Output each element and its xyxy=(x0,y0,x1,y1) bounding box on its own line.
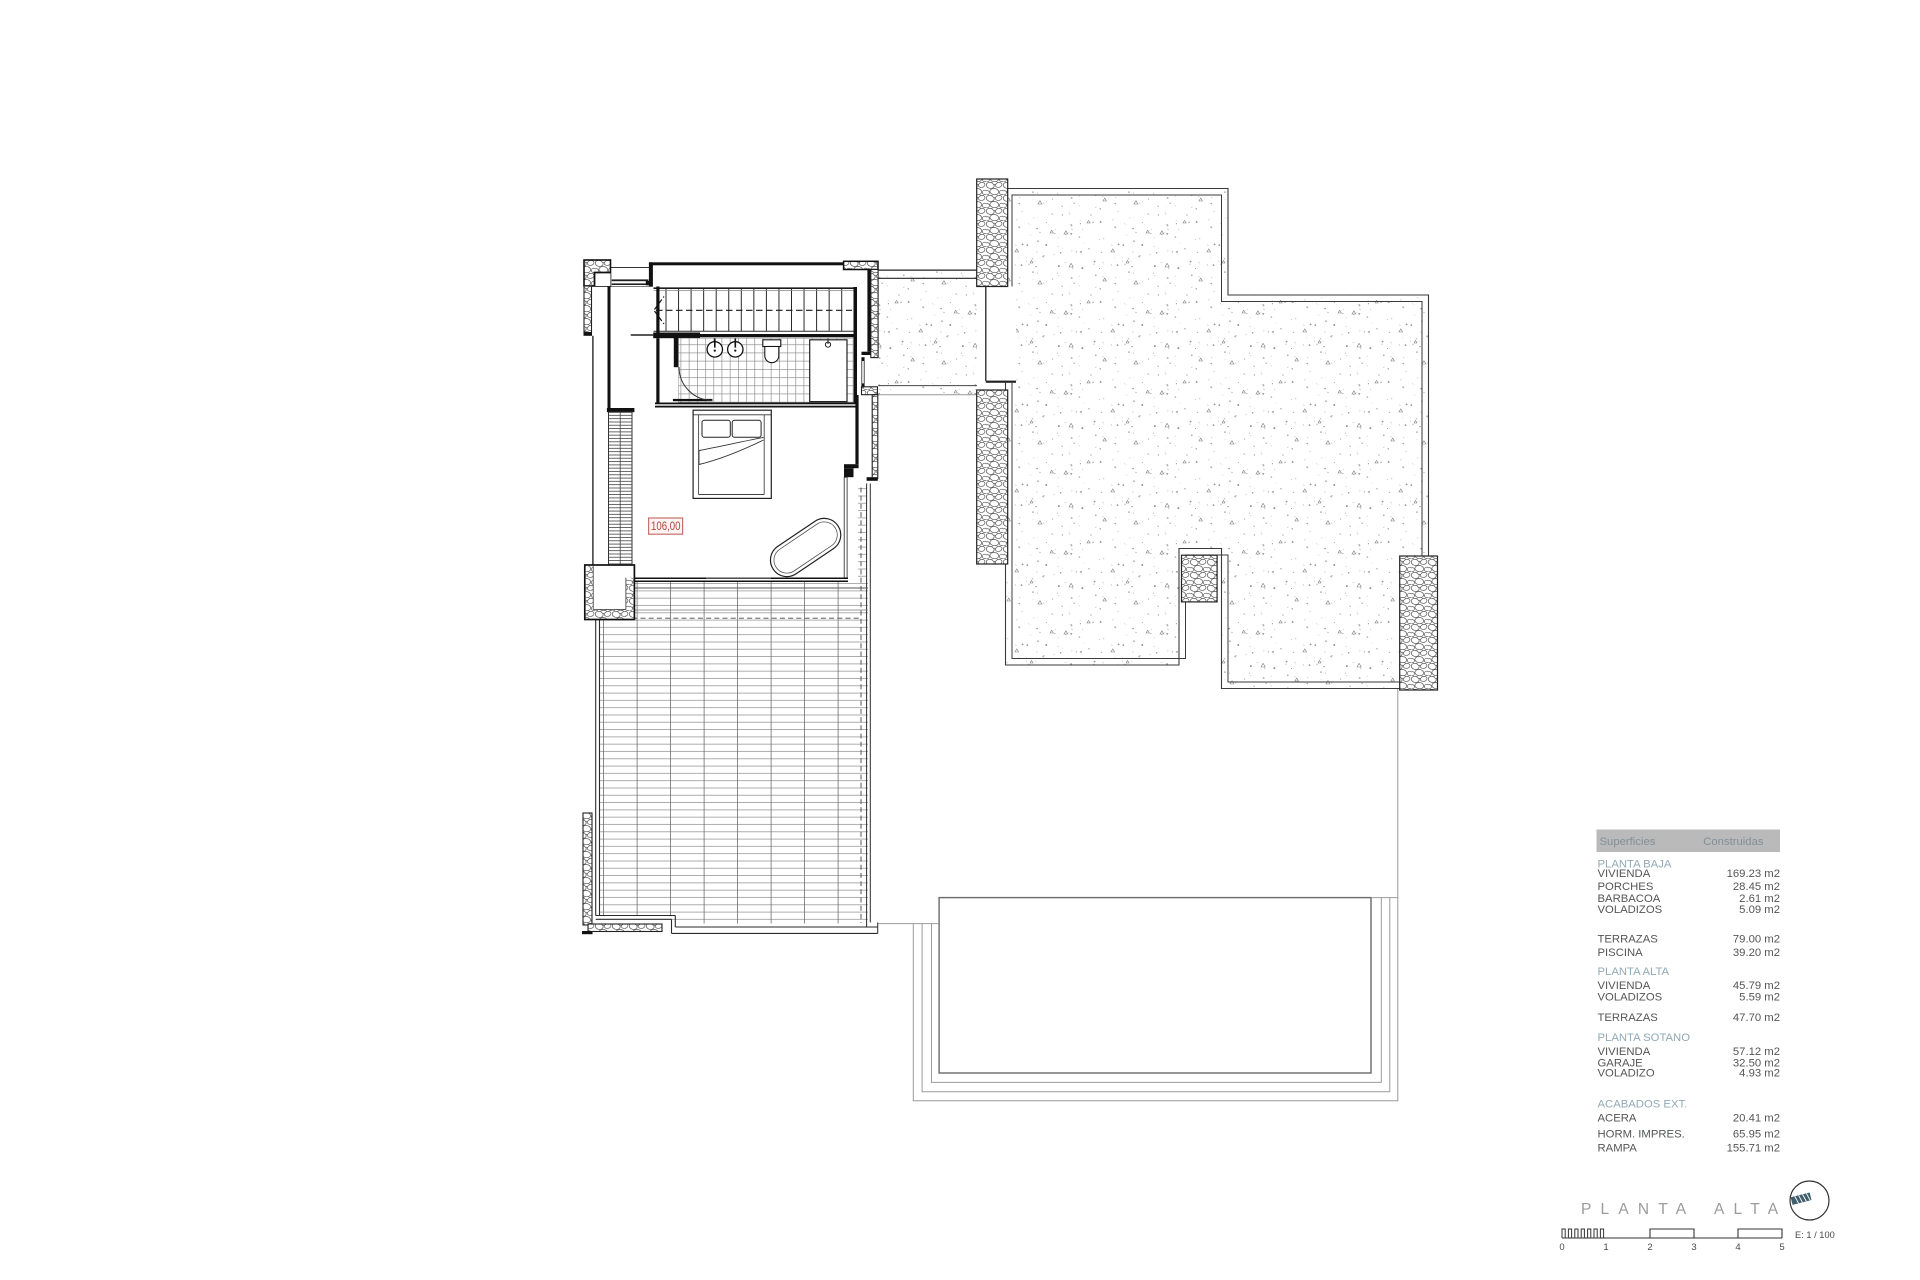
svg-text:VIVIENDA: VIVIENDA xyxy=(1598,1046,1651,1058)
svg-text:ACABADOS EXT.: ACABADOS EXT. xyxy=(1598,1099,1688,1111)
svg-text:PLANTA SOTANO: PLANTA SOTANO xyxy=(1598,1032,1691,1044)
svg-text:2: 2 xyxy=(1647,1242,1652,1253)
svg-text:PORCHES: PORCHES xyxy=(1598,881,1654,893)
svg-text:47.70 m2: 47.70 m2 xyxy=(1733,1012,1780,1024)
svg-text:HORM. IMPRES.: HORM. IMPRES. xyxy=(1598,1129,1685,1141)
svg-text:RAMPA: RAMPA xyxy=(1598,1143,1638,1155)
svg-text:PLANTA: PLANTA xyxy=(1581,1201,1695,1218)
svg-text:169.23 m2: 169.23 m2 xyxy=(1727,868,1780,880)
svg-text:39.20 m2: 39.20 m2 xyxy=(1733,947,1780,959)
svg-text:79.00 m2: 79.00 m2 xyxy=(1733,934,1780,946)
svg-text:65.95 m2: 65.95 m2 xyxy=(1733,1129,1780,1141)
svg-text:45.79 m2: 45.79 m2 xyxy=(1733,980,1780,992)
svg-text:1: 1 xyxy=(1603,1242,1608,1253)
svg-text:E: 1 / 100: E: 1 / 100 xyxy=(1795,1230,1835,1240)
svg-text:20.41 m2: 20.41 m2 xyxy=(1733,1113,1780,1125)
svg-text:155.71 m2: 155.71 m2 xyxy=(1727,1143,1780,1155)
svg-text:4: 4 xyxy=(1735,1242,1740,1253)
svg-text:5.59 m2: 5.59 m2 xyxy=(1739,991,1780,1003)
svg-text:57.12 m2: 57.12 m2 xyxy=(1733,1046,1780,1058)
svg-text:4.93 m2: 4.93 m2 xyxy=(1739,1068,1780,1080)
svg-text:ALTA: ALTA xyxy=(1714,1201,1787,1218)
svg-text:PLANTA ALTA: PLANTA ALTA xyxy=(1598,966,1670,978)
svg-text:PISCINA: PISCINA xyxy=(1598,947,1644,959)
svg-text:28.45 m2: 28.45 m2 xyxy=(1733,881,1780,893)
svg-text:0: 0 xyxy=(1559,1242,1564,1253)
svg-text:VOLADIZO: VOLADIZO xyxy=(1598,1068,1655,1080)
svg-text:5: 5 xyxy=(1779,1242,1784,1253)
svg-text:ACERA: ACERA xyxy=(1598,1113,1637,1125)
svg-text:2.61 m2: 2.61 m2 xyxy=(1739,893,1780,905)
svg-text:5.09 m2: 5.09 m2 xyxy=(1739,904,1780,916)
svg-text:TERRAZAS: TERRAZAS xyxy=(1598,934,1659,946)
svg-text:VIVIENDA: VIVIENDA xyxy=(1598,980,1651,992)
svg-text:BARBACOA: BARBACOA xyxy=(1598,893,1661,905)
svg-text:TERRAZAS: TERRAZAS xyxy=(1598,1012,1659,1024)
svg-text:VOLADIZOS: VOLADIZOS xyxy=(1598,904,1663,916)
svg-text:3: 3 xyxy=(1691,1242,1696,1253)
svg-text:Superficies: Superficies xyxy=(1600,836,1656,848)
svg-text:VIVIENDA: VIVIENDA xyxy=(1598,868,1651,880)
svg-text:VOLADIZOS: VOLADIZOS xyxy=(1598,991,1663,1003)
svg-text:106,00: 106,00 xyxy=(651,521,681,533)
svg-text:Construidas: Construidas xyxy=(1703,836,1764,848)
